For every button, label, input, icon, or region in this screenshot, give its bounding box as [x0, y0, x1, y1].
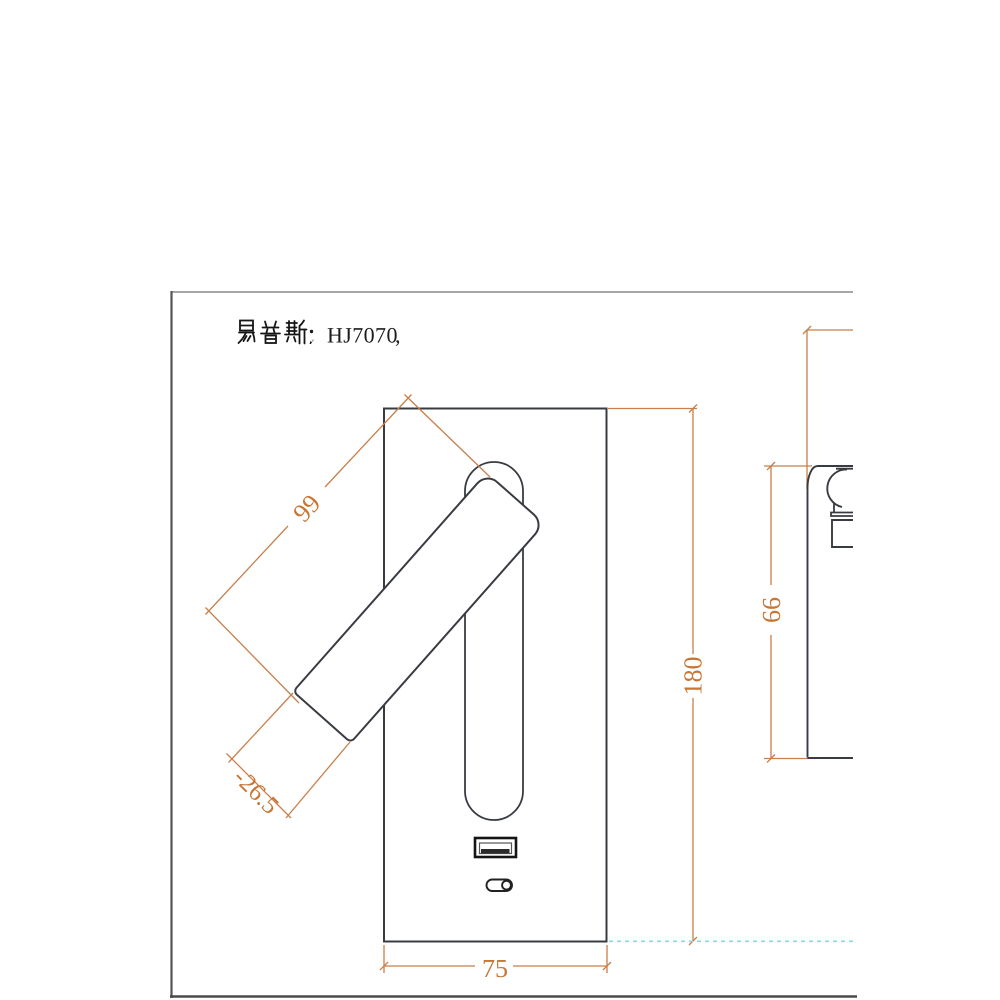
svg-text:75: 75	[482, 954, 508, 983]
svg-text:180: 180	[679, 657, 708, 696]
svg-text:66: 66	[757, 597, 786, 623]
svg-text:,: ,	[395, 323, 401, 348]
svg-text:HJ7070: HJ7070	[327, 323, 398, 348]
